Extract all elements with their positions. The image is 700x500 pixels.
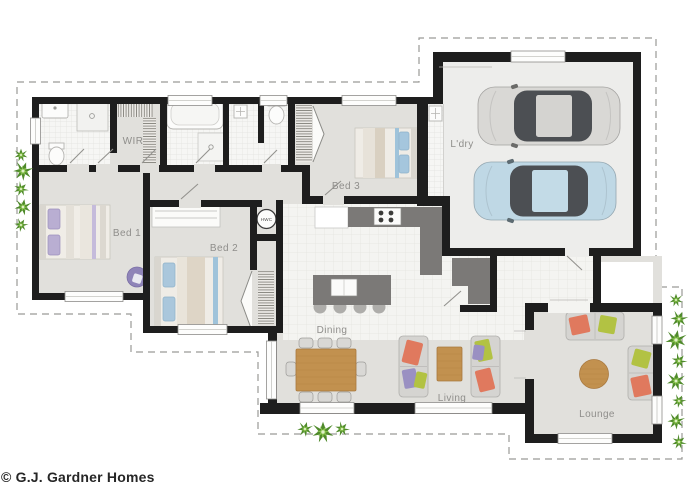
kitchen-counter-side — [420, 227, 442, 275]
window — [652, 316, 662, 344]
ensuite-vanity — [42, 102, 68, 118]
dining-chair — [318, 338, 332, 348]
car-roof — [532, 170, 568, 212]
window — [178, 325, 227, 335]
copyright-credit: © G.J. Gardner Homes — [1, 469, 155, 485]
dining-chair — [337, 338, 351, 348]
wir-rail-top — [117, 103, 153, 117]
window — [342, 96, 396, 106]
floor-plan-page: HWC — [0, 0, 700, 500]
floor-plan: HWC — [0, 0, 700, 500]
bed3-wardrobe-rail — [296, 104, 312, 162]
bed3-label: Bed 3 — [332, 181, 360, 192]
window — [558, 434, 612, 444]
cushion — [598, 315, 618, 335]
window — [415, 403, 492, 414]
window — [652, 396, 662, 424]
car-blue — [474, 159, 616, 224]
bed-1 — [40, 205, 110, 259]
fridge — [315, 207, 348, 228]
window — [65, 292, 123, 302]
window — [300, 403, 354, 414]
window — [168, 96, 212, 106]
ensuite-toilet — [49, 147, 64, 165]
bed1-label: Bed 1 — [113, 228, 141, 239]
car-roof — [536, 95, 572, 137]
dining-chair — [356, 362, 366, 376]
bed2-wardrobe-rail — [258, 271, 274, 331]
dining-chair — [286, 362, 296, 376]
exterior-notch — [601, 262, 653, 303]
dining-chair — [318, 392, 332, 402]
laundry-label: L'dry — [450, 139, 473, 150]
bed-2 — [155, 257, 223, 327]
ensuite-shower — [77, 102, 108, 131]
window — [267, 341, 277, 399]
cooktop — [374, 208, 401, 225]
hwc-label: HWC — [261, 217, 273, 222]
dining-chair — [299, 392, 313, 402]
cushion — [472, 344, 485, 360]
living-label: Living — [438, 393, 467, 404]
dining-chair — [337, 392, 351, 402]
lounge-label: Lounge — [579, 409, 615, 420]
window — [31, 118, 41, 144]
bed-3 — [355, 128, 417, 178]
bed2-label: Bed 2 — [210, 243, 238, 254]
dining-chair — [299, 338, 313, 348]
window — [511, 51, 565, 62]
toilet — [269, 106, 284, 124]
car-silver — [478, 84, 620, 149]
dining-label: Dining — [317, 325, 348, 336]
coffee-table — [437, 347, 462, 381]
wir-label: WIR — [123, 136, 144, 147]
window — [260, 96, 287, 106]
